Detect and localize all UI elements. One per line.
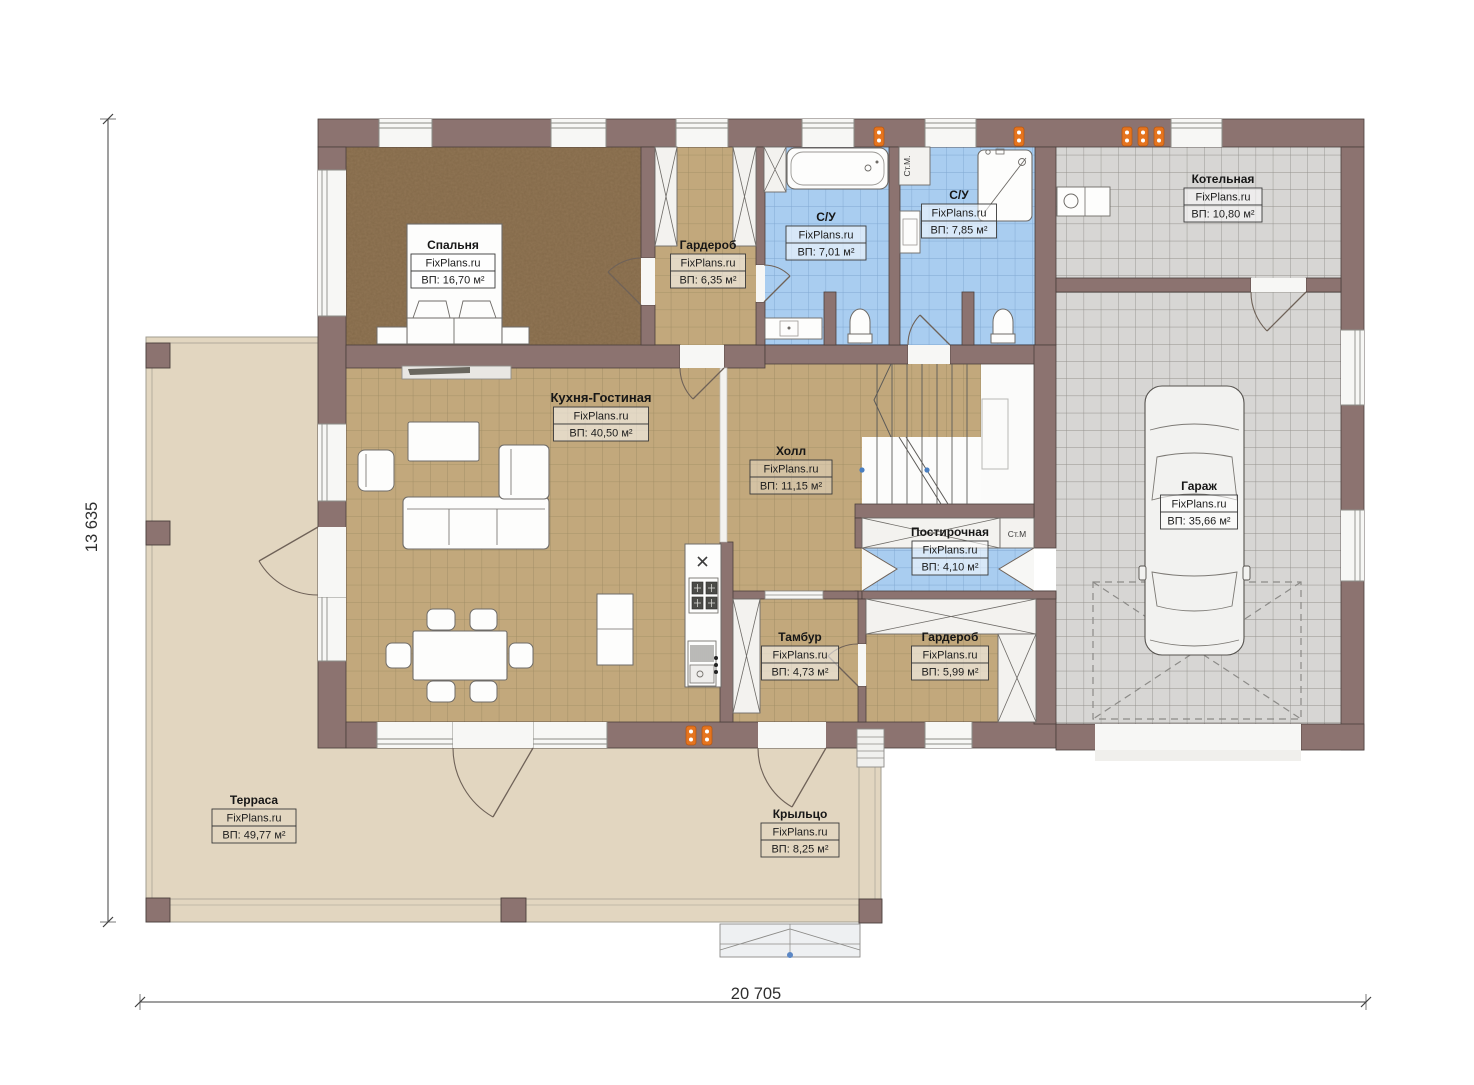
svg-text:FixPlans.ru: FixPlans.ru [772,827,827,839]
svg-text:ВП: 10,80 м²: ВП: 10,80 м² [1191,209,1255,221]
svg-text:ВП: 5,99 м²: ВП: 5,99 м² [921,667,978,679]
svg-text:13 635: 13 635 [83,502,101,552]
svg-text:20 705: 20 705 [731,985,781,1003]
svg-text:FixPlans.ru: FixPlans.ru [425,258,480,270]
svg-text:Котельная: Котельная [1192,172,1255,186]
svg-text:Холл: Холл [776,444,806,458]
svg-text:Гардероб: Гардероб [922,630,979,644]
svg-text:Тамбур: Тамбур [778,630,822,644]
svg-text:ВП: 11,15 м²: ВП: 11,15 м² [760,481,823,493]
svg-text:ВП: 4,73 м²: ВП: 4,73 м² [771,667,828,679]
svg-text:Кухня-Гостиная: Кухня-Гостиная [550,390,651,405]
svg-text:FixPlans.ru: FixPlans.ru [1195,192,1250,204]
svg-text:ВП: 40,50 м²: ВП: 40,50 м² [569,428,633,440]
svg-text:FixPlans.ru: FixPlans.ru [226,813,281,825]
svg-text:Ст.М.: Ст.М. [902,156,912,177]
svg-text:ВП: 7,01 м²: ВП: 7,01 м² [797,247,854,259]
svg-text:С/У: С/У [816,210,836,224]
svg-text:Гараж: Гараж [1181,479,1217,493]
svg-text:FixPlans.ru: FixPlans.ru [763,464,818,476]
svg-text:ВП: 35,66 м²: ВП: 35,66 м² [1167,516,1231,528]
svg-text:Спальня: Спальня [427,238,479,252]
svg-text:Ст.М: Ст.М [1008,529,1027,539]
svg-text:FixPlans.ru: FixPlans.ru [798,230,853,242]
svg-text:Крыльцо: Крыльцо [773,807,828,821]
svg-text:С/У: С/У [949,188,969,202]
svg-text:ВП: 4,10 м²: ВП: 4,10 м² [921,562,978,574]
svg-text:Постирочная: Постирочная [911,525,989,539]
svg-text:Терраса: Терраса [230,793,279,807]
svg-text:FixPlans.ru: FixPlans.ru [922,650,977,662]
svg-text:FixPlans.ru: FixPlans.ru [922,545,977,557]
svg-text:ВП: 7,85 м²: ВП: 7,85 м² [930,225,987,237]
svg-text:FixPlans.ru: FixPlans.ru [680,258,735,270]
svg-text:ВП: 16,70 м²: ВП: 16,70 м² [421,275,485,287]
svg-text:ВП: 8,25 м²: ВП: 8,25 м² [771,844,828,856]
svg-text:FixPlans.ru: FixPlans.ru [1171,499,1226,511]
svg-text:Гардероб: Гардероб [680,238,737,252]
svg-text:FixPlans.ru: FixPlans.ru [931,208,986,220]
svg-text:ВП: 6,35 м²: ВП: 6,35 м² [679,275,736,287]
svg-text:FixPlans.ru: FixPlans.ru [772,650,827,662]
svg-text:ВП: 49,77 м²: ВП: 49,77 м² [222,830,286,842]
svg-text:FixPlans.ru: FixPlans.ru [573,411,628,423]
